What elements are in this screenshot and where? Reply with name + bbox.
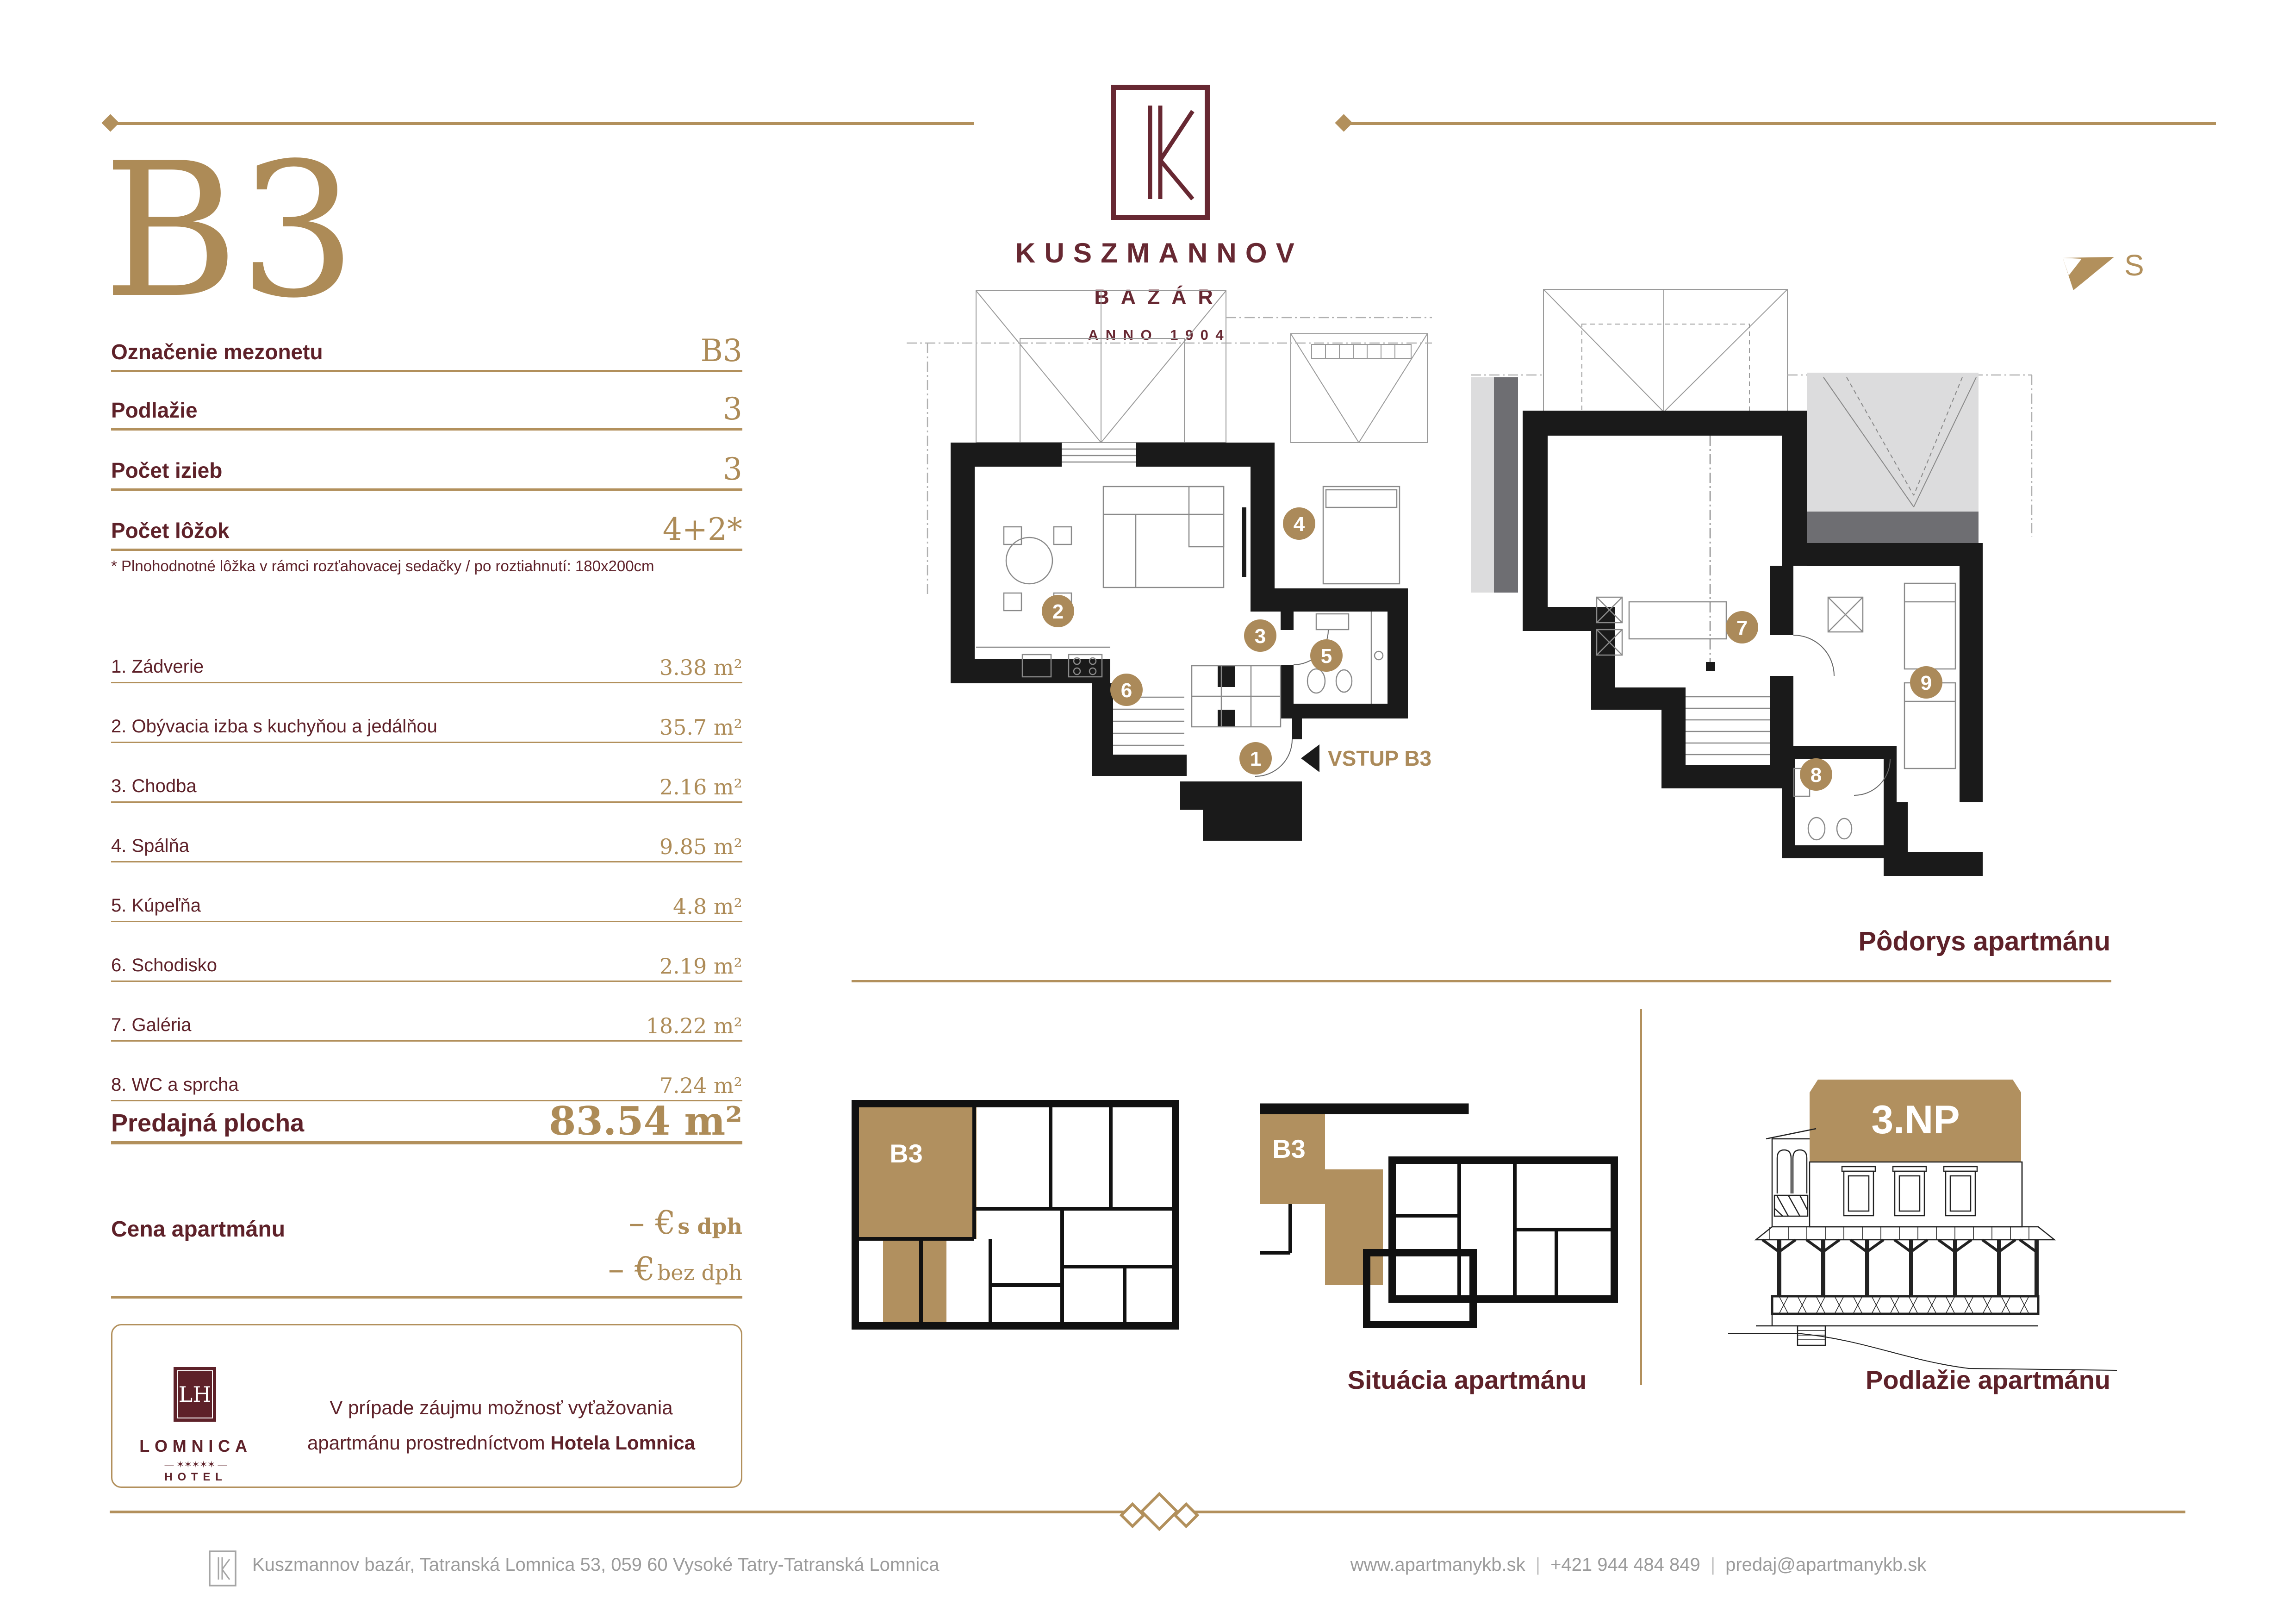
room-area: 9.85 m² xyxy=(660,837,742,856)
spec-row: Počet izieb 3 xyxy=(111,440,742,491)
offer-line2: apartmánu prostredníctvom xyxy=(307,1432,550,1454)
logo-inner-border xyxy=(177,1370,213,1418)
unit-highlight xyxy=(855,1104,977,1322)
room-label: 2. Obývacia izba s kuchyňou a jedálňou xyxy=(111,716,437,737)
room-label: 5. Kúpeľňa xyxy=(111,895,201,916)
post-braces xyxy=(1762,1240,2036,1252)
spec-row: Podlažie 3 xyxy=(111,380,742,431)
level-label: Podlažie apartmánu xyxy=(1740,1365,2110,1395)
price-unit: s dph xyxy=(678,1214,742,1239)
room-area: 2.16 m² xyxy=(660,778,742,797)
section-divider-horizontal xyxy=(852,980,2111,982)
brand-name: KUSZMANNOV xyxy=(981,237,1338,269)
building-elevation: 3.NP xyxy=(1728,1074,2117,1361)
room-label: 7. Galéria xyxy=(111,1015,191,1036)
section-divider-vertical xyxy=(1640,1009,1642,1385)
footer-website: www.apartmanykb.sk xyxy=(1350,1555,1525,1575)
room-label: 8. WC a sprcha xyxy=(111,1074,239,1095)
hotel-offer-text: V prípade záujmu možnosť vyťažovania apa… xyxy=(279,1390,723,1460)
spec-value: 3 xyxy=(723,395,742,423)
page-title: B3 xyxy=(103,139,356,324)
hotel-lomnica-logo: LH xyxy=(174,1367,216,1422)
price-label: Cena apartmánu xyxy=(111,1217,285,1242)
hotel-type: HOTEL xyxy=(131,1471,261,1484)
room-row: 6. Schodisko 2.19 m² xyxy=(111,943,742,982)
svg-text:3: 3 xyxy=(1255,625,1266,648)
svg-text:6: 6 xyxy=(1121,679,1132,702)
room-area: 3.38 m² xyxy=(660,658,742,677)
spec-footnote: * Plnohodnotné lôžka v rámci rozťahovace… xyxy=(111,557,654,575)
entry-label: VSTUP B3 xyxy=(1328,746,1431,770)
footer-phone: +421 944 484 849 xyxy=(1550,1555,1700,1575)
price-with-vat: – € s dph xyxy=(417,1204,742,1242)
room-label: 1. Zádverie xyxy=(111,656,204,677)
room-row: 1. Zádverie 3.38 m² xyxy=(111,644,742,683)
price-rule xyxy=(111,1296,742,1299)
room-label: 6. Schodisko xyxy=(111,955,217,976)
floor-plan-level1: 2 4 3 5 6 1 VSTUP B3 xyxy=(907,290,1432,841)
room-area: 4.8 m² xyxy=(673,897,742,916)
room-row: 5. Kúpeľňa 4.8 m² xyxy=(111,883,742,922)
entry-arrow-icon xyxy=(1301,744,1319,772)
price-unit: bez dph xyxy=(657,1260,742,1285)
spec-label: Počet lôžok xyxy=(111,518,230,543)
summary-value: 83.54 m² xyxy=(549,1105,742,1137)
room-row: 8. WC a sprcha 7.24 m² xyxy=(111,1062,742,1101)
level-band-label: 3.NP xyxy=(1871,1098,1960,1142)
walls xyxy=(951,443,1408,841)
spec-label: Označenie mezonetu xyxy=(111,339,323,364)
offer-line1: V prípade záujmu možnosť vyťažovania xyxy=(330,1397,672,1418)
footer-logo-icon xyxy=(208,1550,237,1587)
floor-plan-label: Pôdorys apartmánu xyxy=(1740,926,2110,957)
svg-text:8: 8 xyxy=(1811,764,1822,787)
hotel-name: LOMNICA xyxy=(131,1437,261,1456)
svg-text:1: 1 xyxy=(1250,748,1261,770)
header-rule-right xyxy=(1343,122,2216,125)
summary-row: Predajná plocha 83.54 m² xyxy=(111,1100,742,1144)
railing xyxy=(1728,1296,2117,1370)
footer-separator: | xyxy=(1525,1555,1550,1575)
kuszmannov-monogram-icon xyxy=(1116,90,1205,215)
spec-row: Počet lôžok 4+2* xyxy=(111,500,742,551)
room-label: 4. Spálňa xyxy=(111,836,189,856)
unit-label: B3 xyxy=(890,1139,923,1168)
roof-outline xyxy=(976,291,1427,443)
svg-text:4: 4 xyxy=(1294,513,1305,536)
hotel-stars: — ✶✶✶✶✶ — xyxy=(131,1459,261,1470)
spec-value: B3 xyxy=(701,337,743,364)
unit-label: B3 xyxy=(1272,1134,1306,1163)
price-value: – € xyxy=(628,1204,676,1242)
room-area: 2.19 m² xyxy=(660,957,742,976)
svg-text:9: 9 xyxy=(1921,672,1932,694)
diamond-icon xyxy=(1335,114,1352,131)
summary-label: Predajná plocha xyxy=(111,1109,304,1137)
price-value: – € xyxy=(608,1250,655,1288)
spec-label: Počet izieb xyxy=(111,458,222,483)
situation-label: Situácia apartmánu xyxy=(1282,1365,1652,1395)
window xyxy=(1842,1167,1977,1216)
room-row: 4. Spálňa 9.85 m² xyxy=(111,824,742,862)
floor-plan-gallery: 7 9 8 xyxy=(1458,278,2046,926)
svg-text:7: 7 xyxy=(1736,617,1748,639)
north-compass: S xyxy=(2055,234,2184,299)
brochure-page: { "colors": { "maroon": "#5e2129", "logo… xyxy=(0,0,2296,1624)
spec-label: Podlažie xyxy=(111,398,198,423)
spec-row: Označenie mezonetu B3 xyxy=(111,320,742,372)
room-area: 35.7 m² xyxy=(660,718,742,737)
room-row: 2. Obývacia izba s kuchyňou a jedálňou 3… xyxy=(111,704,742,743)
room-area: 18.22 m² xyxy=(646,1017,742,1036)
svg-text:2: 2 xyxy=(1052,600,1064,623)
room-label: 3. Chodba xyxy=(111,776,197,797)
svg-text:5: 5 xyxy=(1321,645,1332,668)
footer-email: predaj@apartmanykb.sk xyxy=(1725,1555,1926,1575)
kuszmannov-logo xyxy=(1111,85,1210,220)
roof-outline xyxy=(1543,289,1787,412)
room-area: 7.24 m² xyxy=(660,1076,742,1095)
footer-ornament-icon xyxy=(1106,1484,1213,1544)
spec-value: 4+2* xyxy=(663,516,742,543)
situation-plan-level3: B3 xyxy=(852,1100,1215,1338)
room-row: 7. Galéria 18.22 m² xyxy=(111,1003,742,1042)
compass-label: S xyxy=(2124,249,2144,282)
hotel-lomnica-box: LH LOMNICA — ✶✶✶✶✶ — HOTEL V prípade záu… xyxy=(111,1324,742,1488)
room-row: 3. Chodba 2.16 m² xyxy=(111,764,742,803)
footer-address: Kuszmannov bazár, Tatranská Lomnica 53, … xyxy=(252,1555,940,1575)
price-without-vat: – € bez dph xyxy=(417,1250,742,1288)
situation-plan-gallery: B3 xyxy=(1260,1100,1637,1338)
offer-line2-bold: Hotela Lomnica xyxy=(550,1432,695,1454)
footer-contacts: www.apartmanykb.sk|+421 944 484 849|pred… xyxy=(1291,1555,1985,1575)
footer-separator: | xyxy=(1700,1555,1725,1575)
spec-value: 3 xyxy=(723,456,742,483)
